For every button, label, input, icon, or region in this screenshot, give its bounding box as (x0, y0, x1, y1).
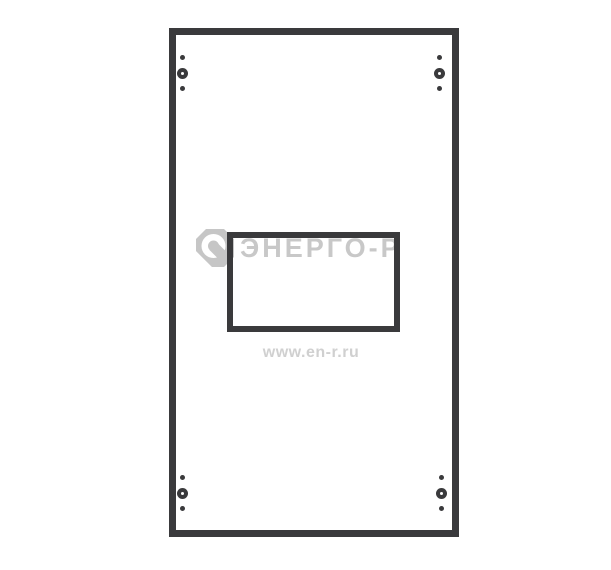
pilot-hole-dot (439, 475, 444, 480)
pilot-hole-dot (437, 86, 442, 91)
pilot-hole-dot (180, 475, 185, 480)
fastener-top-left (177, 55, 188, 91)
screw-washer-icon (177, 488, 188, 499)
fastener-top-right (434, 55, 445, 91)
screw-center-hole (181, 72, 184, 75)
screw-washer-icon (177, 68, 188, 79)
screw-center-hole (181, 492, 184, 495)
pilot-hole-dot (180, 86, 185, 91)
screw-washer-icon (436, 488, 447, 499)
screw-center-hole (440, 492, 443, 495)
screw-center-hole (438, 72, 441, 75)
screw-washer-icon (434, 68, 445, 79)
product-drawing-canvas: ЭНЕРГО-Р www.en-r.ru (0, 0, 611, 570)
pilot-hole-dot (439, 506, 444, 511)
pilot-hole-dot (437, 55, 442, 60)
cutout-window (227, 232, 400, 332)
fastener-bottom-left (177, 475, 188, 511)
fastener-bottom-right (436, 475, 447, 511)
pilot-hole-dot (180, 506, 185, 511)
pilot-hole-dot (180, 55, 185, 60)
